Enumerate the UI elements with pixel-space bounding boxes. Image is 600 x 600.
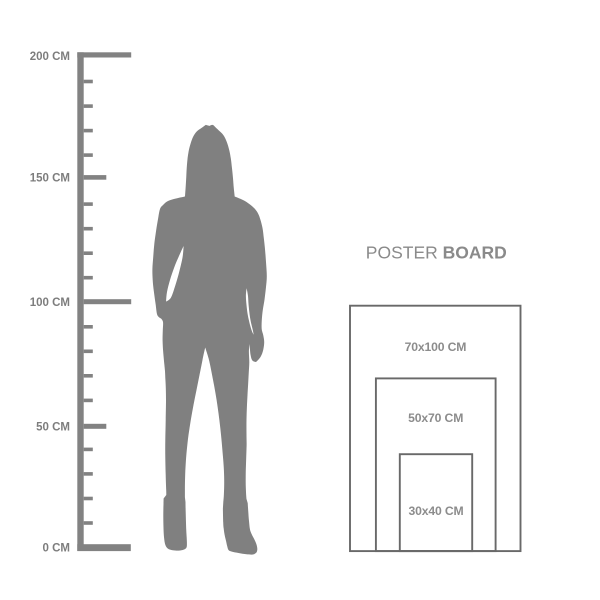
- svg-text:0 CM: 0 CM: [43, 543, 70, 555]
- svg-text:30x40 CM: 30x40 CM: [408, 504, 463, 518]
- svg-text:150 CM: 150 CM: [30, 173, 70, 185]
- svg-text:100 CM: 100 CM: [30, 297, 70, 309]
- svg-text:200 CM: 200 CM: [30, 51, 70, 63]
- svg-text:POSTER BOARD: POSTER BOARD: [366, 243, 507, 263]
- svg-text:70x100 CM: 70x100 CM: [405, 340, 467, 354]
- svg-text:50x70 CM: 50x70 CM: [408, 411, 463, 425]
- svg-text:50 CM: 50 CM: [36, 421, 70, 433]
